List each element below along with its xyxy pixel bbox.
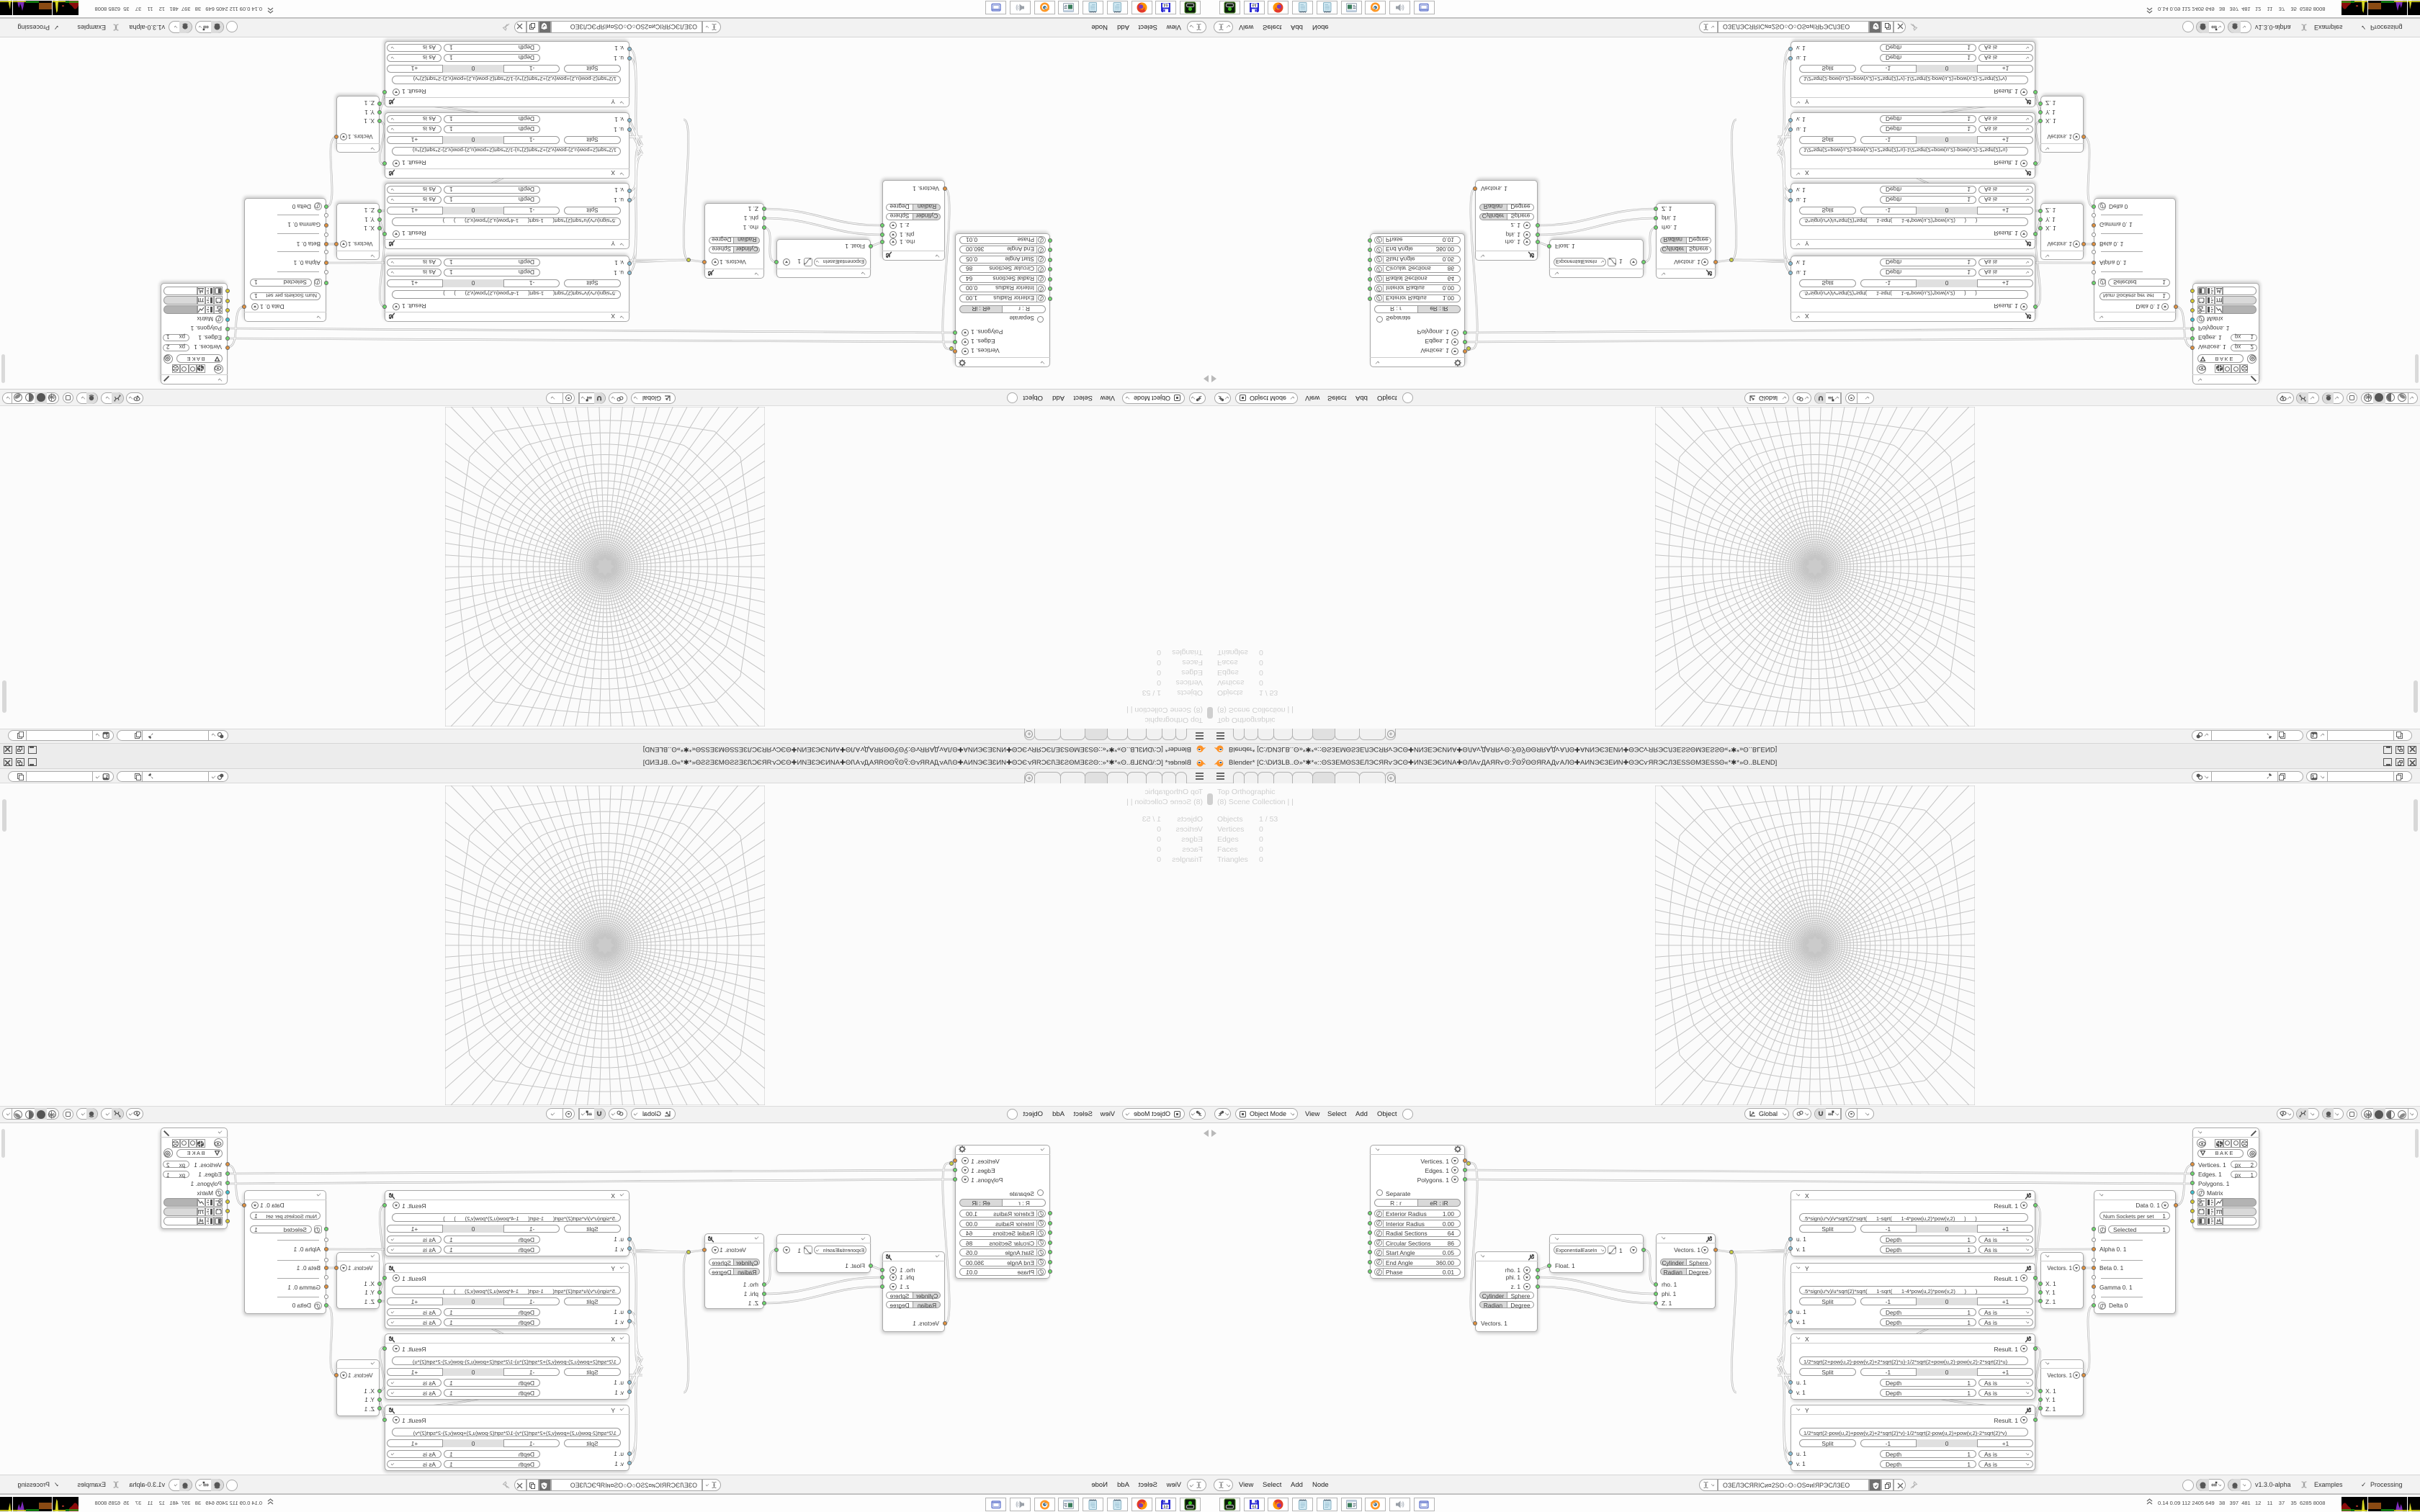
svg-text:64: 64: [1252, 1506, 1256, 1510]
svg-text:64: 64: [1164, 3, 1168, 7]
svg-text:64: 64: [1164, 1506, 1168, 1510]
svg-text:64: 64: [1252, 3, 1256, 7]
